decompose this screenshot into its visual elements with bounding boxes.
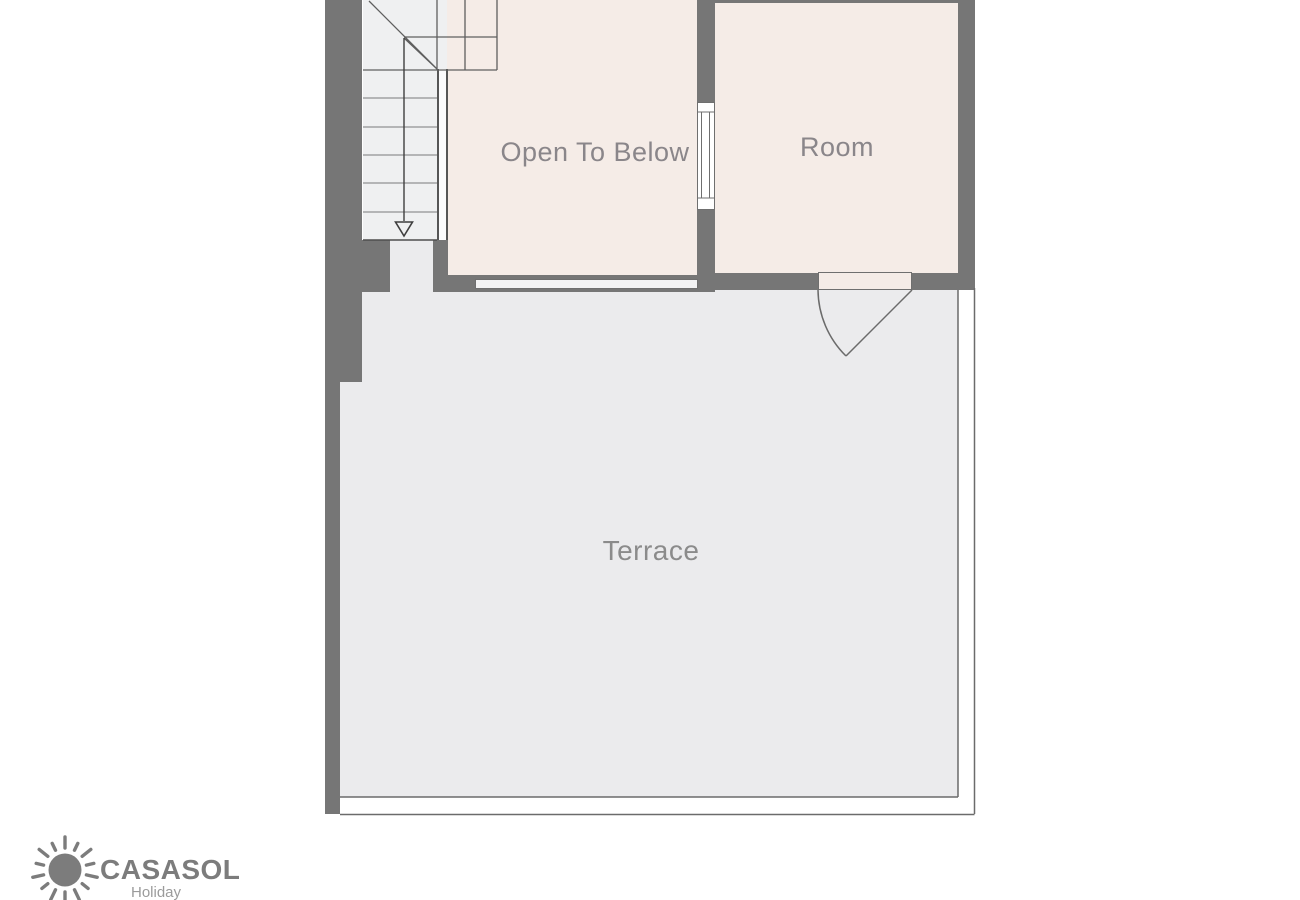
stairs-flight	[363, 0, 437, 240]
window-band	[475, 279, 698, 289]
interior-window-symbol	[697, 102, 715, 210]
wall-right	[958, 0, 975, 290]
door-threshold	[818, 272, 912, 290]
casasol-logo: CASASOL Holiday	[0, 828, 260, 900]
room-label: Room	[800, 132, 874, 163]
stairs-railing	[437, 69, 448, 240]
terrace-label: Terrace	[603, 535, 700, 567]
brand-name: CASASOL	[100, 854, 240, 886]
stairs-passage	[390, 240, 433, 292]
wall-left-upper	[325, 0, 362, 382]
wall-top-remnant	[697, 0, 975, 3]
brand-tagline: Holiday	[131, 884, 181, 900]
sun-icon	[22, 832, 108, 900]
wall-stair-stub	[362, 240, 390, 292]
wall-left-lower	[325, 373, 340, 814]
floor-plan: Open To Below Room Terrace CASASOL Holid…	[0, 0, 1300, 900]
open-to-below-label: Open To Below	[500, 137, 689, 168]
